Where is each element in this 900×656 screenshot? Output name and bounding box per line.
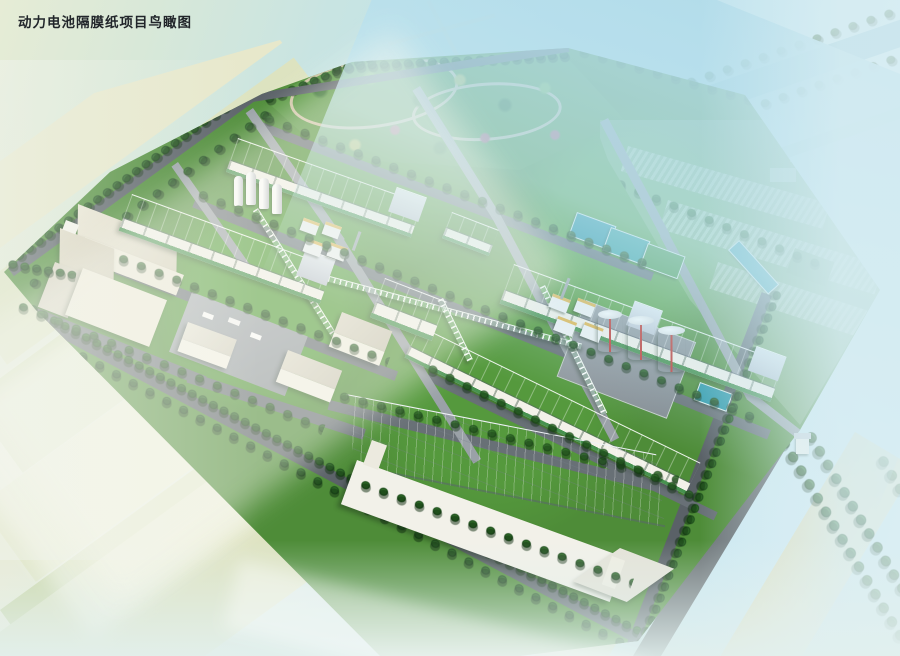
cooling-unit: [322, 221, 342, 239]
truck: [250, 332, 262, 341]
gate: [796, 436, 814, 460]
silo: [272, 184, 282, 214]
cooling-unit: [573, 298, 596, 318]
tank: [598, 314, 622, 352]
page-title: 动力电池隔膜纸项目鸟瞰图: [18, 11, 192, 31]
silo: [259, 178, 269, 209]
truck: [202, 312, 214, 321]
stack: [352, 231, 362, 251]
ghost-shed: [770, 168, 796, 182]
gate-roof: [794, 433, 811, 439]
tank: [658, 330, 685, 372]
truck: [228, 317, 241, 326]
silo: [246, 172, 256, 205]
tank: [628, 320, 654, 360]
birdseye-rendering: 动力电池隔膜纸项目鸟瞰图: [0, 0, 900, 656]
